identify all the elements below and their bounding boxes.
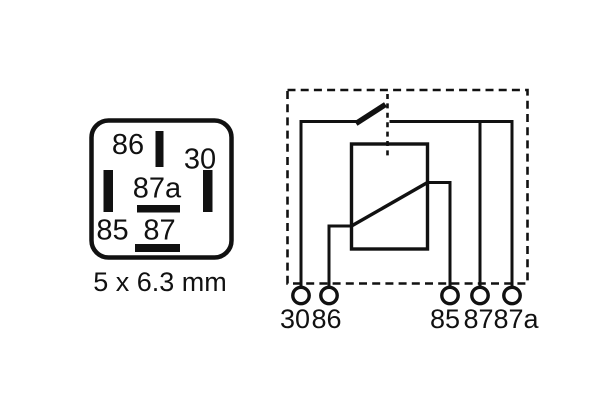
terminal-label-85: 85 [430,304,460,334]
terminal-circle-85 [442,287,458,303]
socket-pin-label-85: 85 [96,215,128,247]
terminal-circle-30 [293,287,309,303]
relay-socket-footprint: 86 30 87a 85 87 5 x 6.3 mm [92,121,232,298]
terminal-circle-87 [472,287,488,303]
switch-blade-icon [356,105,386,124]
coil-winding-diagonal [352,183,428,227]
terminal-circle-86 [321,287,337,303]
socket-pin-label-87a: 87a [133,173,182,205]
wire-terminal-85 [427,183,450,289]
pin-slot-85-icon [104,170,114,212]
socket-size-caption: 5 x 6.3 mm [93,267,227,297]
pin-slot-87a-icon [137,205,180,213]
relay-diagram-canvas: 86 30 87a 85 87 5 x 6.3 mm [0,0,600,400]
wire-terminal-86 [329,226,351,288]
socket-pin-label-86: 86 [112,129,144,161]
pin-slot-30-icon [203,170,213,212]
schematic-dashed-housing [288,90,528,284]
socket-pin-label-30: 30 [184,144,216,176]
coil-box [352,144,428,249]
terminal-label-30: 30 [280,304,310,334]
terminal-circle-87a [504,287,520,303]
relay-circuit-schematic: 30 86 85 87 87a [280,90,540,334]
pin-slot-86-icon [156,131,164,167]
terminal-label-87a: 87a [493,304,539,334]
relay-diagram-figure: 86 30 87a 85 87 5 x 6.3 mm [0,0,600,400]
socket-pin-label-87: 87 [143,215,175,247]
terminal-label-87: 87 [463,304,493,334]
terminal-label-86: 86 [311,304,341,334]
